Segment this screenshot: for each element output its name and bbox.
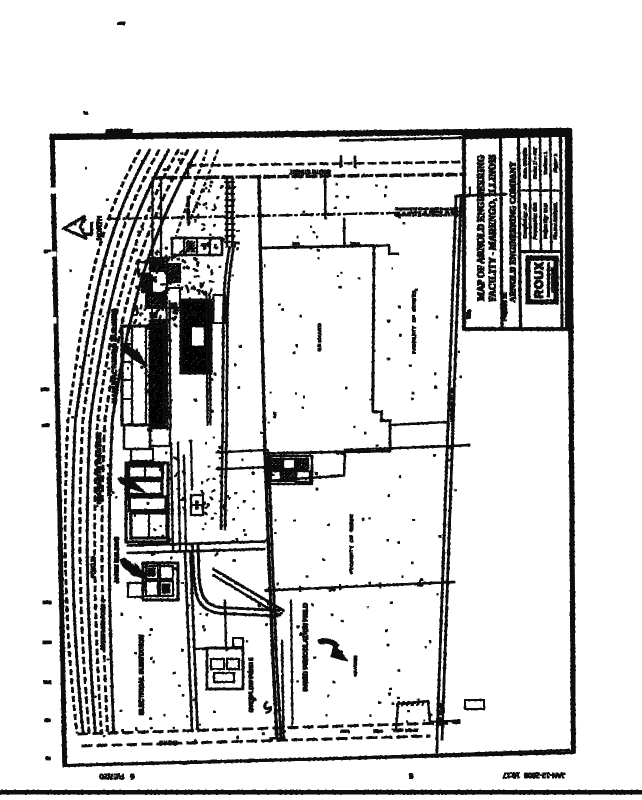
svg-text:File No: 48ARN01: File No: 48ARN01: [553, 202, 558, 239]
svg-text:MAIN: MAIN: [373, 729, 382, 733]
svg-text:OVERFLOW POND 5: OVERFLOW POND 5: [249, 658, 255, 713]
svg-text:30.5: 30.5: [293, 242, 300, 246]
svg-text:See Plate 14 of Atlas Map 5 of: See Plate 14 of Atlas Map 5 of 5 Plats: [394, 212, 459, 217]
svg-text:168.2: 168.2: [351, 242, 360, 246]
svg-text:PROPERTY OF OTHERS: PROPERTY OF OTHERS: [412, 290, 417, 354]
svg-text:FACILITY - MARENGO, ILLINOIS: FACILITY - MARENGO, ILLINOIS: [488, 154, 498, 301]
svg-text:ARNOLD ENGINEERING COMPANY: ARNOLD ENGINEERING COMPANY: [508, 161, 517, 302]
svg-text:ROAD: ROAD: [158, 739, 176, 745]
svg-text:Figure: 2: Figure: 2: [553, 153, 558, 172]
svg-text:MANUFACTURING BUILDING: MANUFACTURING BUILDING: [111, 309, 118, 404]
svg-text:4.5 ACRES: 4.5 ACRES: [353, 656, 358, 677]
svg-text:427: 427: [273, 412, 277, 418]
svg-text:DRIED PERCOLATION FIELD: DRIED PERCOLATION FIELD: [303, 603, 310, 691]
svg-text:Scale: 1" = 400': Scale: 1" = 400': [533, 147, 538, 179]
svg-text:ROUX: ROUX: [532, 262, 546, 299]
svg-text:0440: 0440: [341, 729, 349, 733]
svg-text:RIVER BANK: RIVER BANK: [392, 728, 418, 733]
svg-text:PL: PL: [260, 298, 264, 302]
svg-text:WASTEWATER TREATMENT: WASTEWATER TREATMENT: [97, 431, 103, 504]
svg-text:Project Mgr: DLM: Project Mgr: DLM: [543, 203, 548, 239]
svg-text:OVERFLOW POND 4: OVERFLOW POND 4: [101, 600, 107, 651]
svg-text:ELECTRICAL SUBSTATION: ELECTRICAL SUBSTATION: [139, 634, 146, 715]
svg-text:BLDG: BLDG: [195, 500, 199, 509]
svg-text:MAP OF ARNOLD ENGINEERING: MAP OF ARNOLD ENGINEERING: [476, 155, 486, 300]
svg-text:SOUTH STREET: SOUTH STREET: [289, 168, 330, 174]
svg-text:U.S. RT. 20: U.S. RT. 20: [438, 702, 443, 725]
svg-text:160: 160: [417, 583, 423, 587]
svg-text:Compiled by: JW: Compiled by: JW: [523, 203, 528, 238]
svg-text:Revision: 1: Revision: 1: [543, 151, 548, 174]
svg-text:PROPERTY OF MINOR: PROPERTY OF MINOR: [349, 514, 354, 574]
svg-text:POND 30: POND 30: [91, 556, 97, 578]
svg-text:ORCHARD: ORCHARD: [317, 323, 322, 352]
svg-text:ANNEX BUILDING: ANNEX BUILDING: [114, 537, 120, 583]
svg-text:JAN-12-2006 16:17: JAN-12-2006 16:17: [503, 771, 566, 778]
svg-text:Replaced by 6 inch water main: Replaced by 6 inch water main 1967: [396, 206, 459, 211]
svg-text:Date: 04/10/98: Date: 04/10/98: [523, 147, 528, 178]
svg-text:PONDS 1 - 4: PONDS 1 - 4: [107, 464, 113, 495]
svg-text:HIGHWAY RT 20: HIGHWAY RT 20: [450, 388, 455, 422]
svg-text:ASSOCIATES INC: ASSOCIATES INC: [550, 267, 554, 293]
svg-text:5 P.67/20: 5 P.67/20: [100, 772, 135, 781]
svg-text:Title: Title: [466, 310, 472, 319]
svg-text:Prepared by: McS: Prepared by: McS: [533, 203, 538, 240]
svg-text:N 88: N 88: [336, 451, 344, 455]
svg-text:340: 340: [329, 588, 335, 592]
svg-text:2F: 2F: [198, 334, 203, 339]
svg-text:5: 5: [409, 772, 413, 781]
svg-text:ACCESS ROAD: ACCESS ROAD: [187, 196, 191, 224]
